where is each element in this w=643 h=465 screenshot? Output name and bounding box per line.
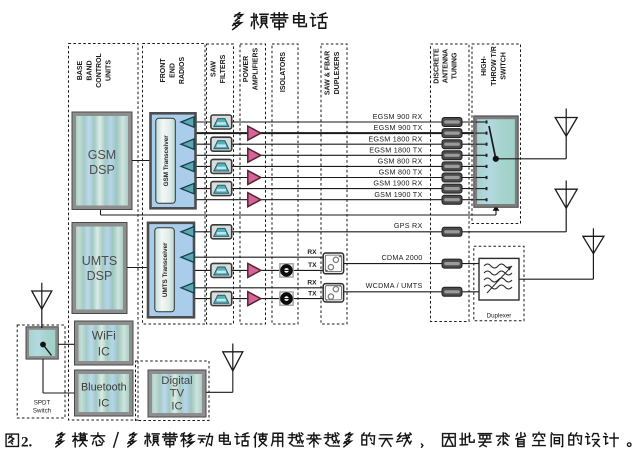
svg-text:RADIOS: RADIOS bbox=[179, 57, 186, 85]
svg-text:END: END bbox=[169, 63, 176, 78]
svg-text:ISOLATORS: ISOLATORS bbox=[280, 52, 287, 93]
svg-text:GSM 1900 RX: GSM 1900 RX bbox=[373, 179, 422, 188]
svg-text:GPS RX: GPS RX bbox=[394, 221, 423, 230]
svg-text:THROW T/R: THROW T/R bbox=[491, 46, 498, 86]
svg-text:UNITS: UNITS bbox=[106, 60, 113, 81]
svg-text:WiFi: WiFi bbox=[92, 329, 116, 343]
svg-text:FRONT: FRONT bbox=[160, 58, 167, 83]
svg-text:GSM 800 TX: GSM 800 TX bbox=[379, 168, 423, 177]
svg-text:TX: TX bbox=[308, 290, 317, 297]
svg-text:GSM 1900 TX: GSM 1900 TX bbox=[374, 190, 422, 199]
svg-text:EGSM 1800 RX: EGSM 1800 RX bbox=[368, 134, 422, 143]
svg-text:EGSM 1800 TX: EGSM 1800 TX bbox=[369, 145, 422, 154]
svg-text:TUNING: TUNING bbox=[452, 52, 459, 79]
svg-text:2.: 2. bbox=[21, 435, 33, 451]
svg-text:IC: IC bbox=[98, 398, 109, 410]
svg-text:IC: IC bbox=[171, 401, 182, 413]
svg-text:TX: TX bbox=[308, 262, 317, 269]
svg-text:HIGH-: HIGH- bbox=[481, 55, 488, 76]
svg-text:RX: RX bbox=[307, 279, 317, 286]
svg-text:GSM Transceiver: GSM Transceiver bbox=[163, 135, 170, 187]
svg-text:AMPLIFIERS: AMPLIFIERS bbox=[253, 47, 260, 90]
svg-text:FILTERS: FILTERS bbox=[220, 54, 227, 83]
svg-text:DSP: DSP bbox=[87, 269, 113, 283]
svg-text:RX: RX bbox=[307, 249, 317, 256]
svg-text:ANTENNA: ANTENNA bbox=[443, 49, 450, 83]
svg-text:IC: IC bbox=[98, 345, 110, 359]
svg-text:CDMA 2000: CDMA 2000 bbox=[381, 253, 422, 262]
svg-text:UMTS: UMTS bbox=[82, 254, 117, 268]
svg-text:CONTROL: CONTROL bbox=[96, 52, 103, 87]
svg-text:Duplexer: Duplexer bbox=[487, 313, 512, 320]
svg-text:BASE: BASE bbox=[77, 60, 84, 80]
svg-text:Switch: Switch bbox=[33, 408, 52, 415]
svg-text:TV: TV bbox=[170, 388, 185, 400]
svg-text:GSM: GSM bbox=[88, 148, 116, 162]
svg-text:DISCRETE: DISCRETE bbox=[434, 48, 441, 84]
svg-text:GSM 800 RX: GSM 800 RX bbox=[378, 157, 423, 166]
svg-text:SAW & FBAR: SAW & FBAR bbox=[325, 51, 332, 95]
svg-text:POWER: POWER bbox=[243, 56, 250, 82]
svg-text:Bluetooth: Bluetooth bbox=[81, 382, 127, 394]
svg-text:SPDT: SPDT bbox=[34, 400, 51, 407]
svg-text:EGSM 900 RX: EGSM 900 RX bbox=[373, 112, 423, 121]
svg-text:DSP: DSP bbox=[89, 163, 115, 177]
svg-text:DUPLEXERS: DUPLEXERS bbox=[334, 51, 341, 94]
svg-text:WCDMA / UMTS: WCDMA / UMTS bbox=[366, 281, 423, 290]
svg-text:SWITCH: SWITCH bbox=[501, 52, 508, 80]
svg-text:EGSM 900 TX: EGSM 900 TX bbox=[374, 123, 423, 132]
svg-text:Digital: Digital bbox=[161, 375, 192, 387]
svg-text:BAND: BAND bbox=[87, 60, 94, 80]
svg-text:SAW: SAW bbox=[211, 61, 218, 77]
svg-text:UMTS Transceiver: UMTS Transceiver bbox=[162, 242, 169, 297]
